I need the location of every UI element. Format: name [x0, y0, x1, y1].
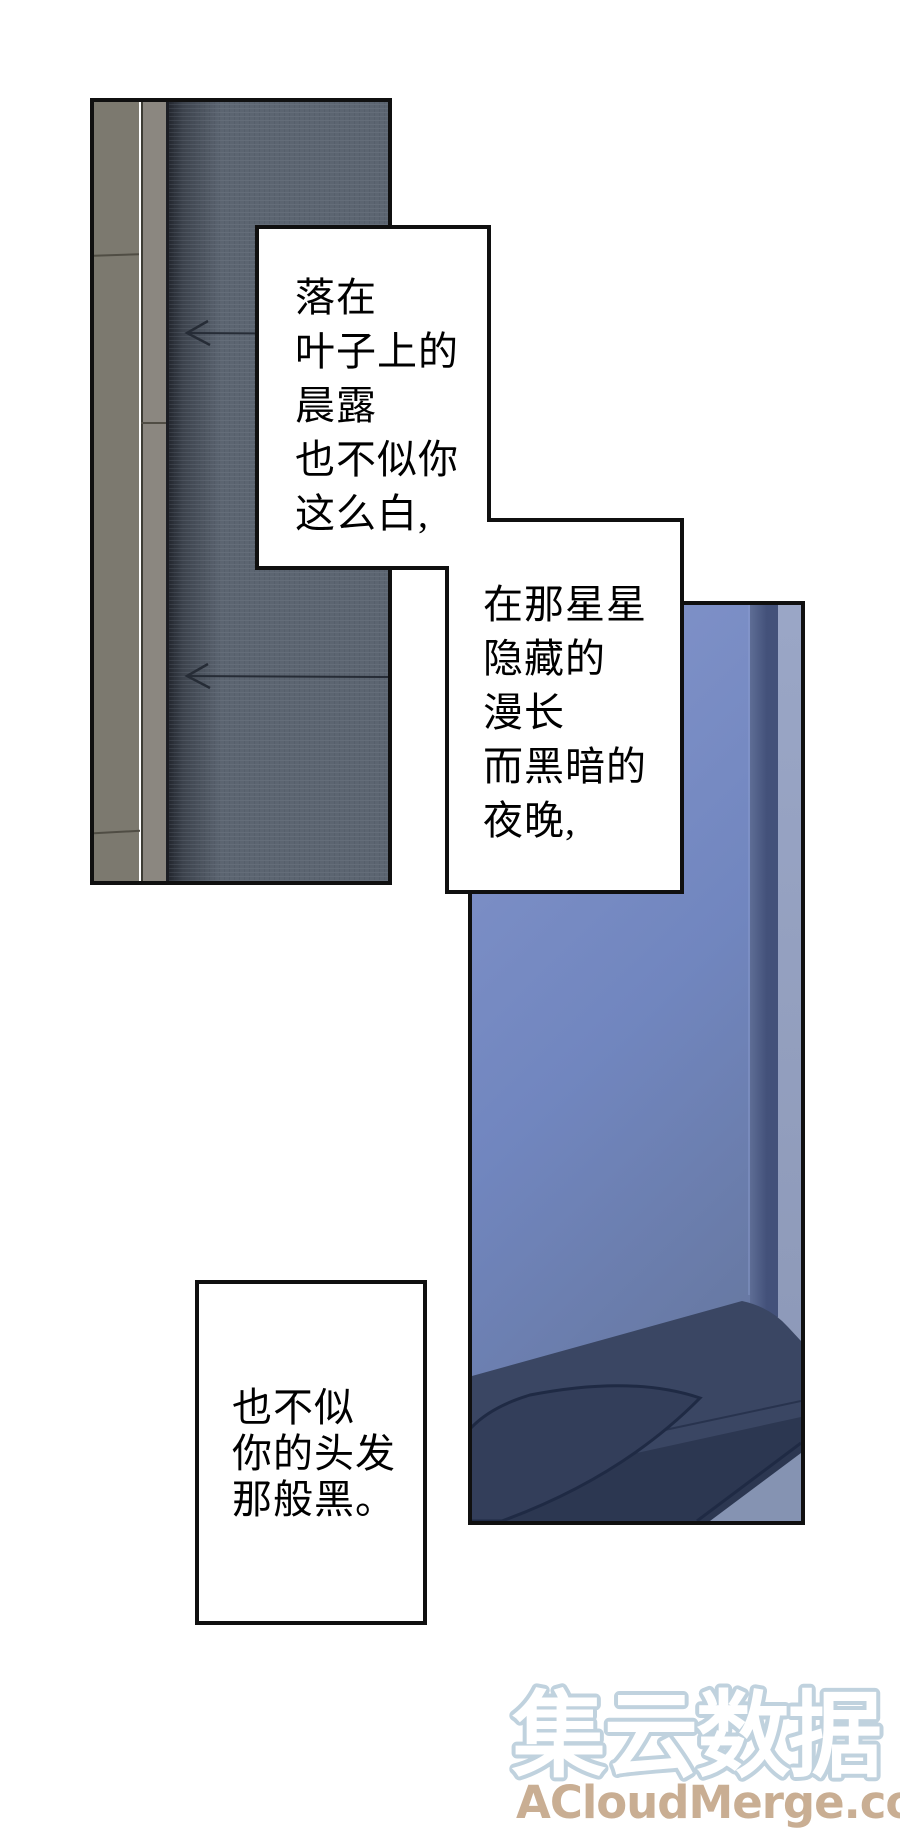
- wood-plank-seam: [141, 422, 168, 424]
- narration-line: 也不似你: [295, 433, 459, 487]
- door-wood-plank-right: [141, 102, 168, 881]
- narration-line: 而黑暗的: [483, 740, 647, 794]
- door-wood-plank-left: [94, 102, 139, 881]
- monitor-bezel-strip: [750, 605, 778, 1317]
- watermark-domain: ACloudMerge.com: [516, 1776, 900, 1829]
- narration-text-3: 也不似 你的头发 那般黑。: [232, 1385, 396, 1523]
- narration-line: 那般黑。: [232, 1477, 396, 1523]
- narration-line: 夜晚,: [483, 794, 647, 848]
- narration-text-1: 落在 叶子上的 晨露 也不似你 这么白,: [295, 271, 459, 541]
- watermark-brand-text: 集云数据: [511, 1682, 880, 1791]
- comic-page: 落在 叶子上的 晨露 也不似你 这么白, 在那星星 隐藏的 漫长 而黑暗的 夜晚…: [0, 0, 900, 1830]
- narration-line: 晨露: [295, 379, 459, 433]
- narration-line: 落在: [295, 271, 459, 325]
- narration-line: 也不似: [232, 1385, 396, 1431]
- fabric-seam-arrow-icon: [181, 661, 388, 691]
- narration-line: 隐藏的: [483, 632, 647, 686]
- narration-line: 你的头发: [232, 1431, 396, 1477]
- narration-line: 在那星星: [483, 578, 647, 632]
- narration-line: 漫长: [483, 686, 647, 740]
- narration-text-2: 在那星星 隐藏的 漫长 而黑暗的 夜晚,: [483, 578, 647, 848]
- narration-line: 这么白,: [295, 487, 459, 541]
- narration-line: 叶子上的: [295, 325, 459, 379]
